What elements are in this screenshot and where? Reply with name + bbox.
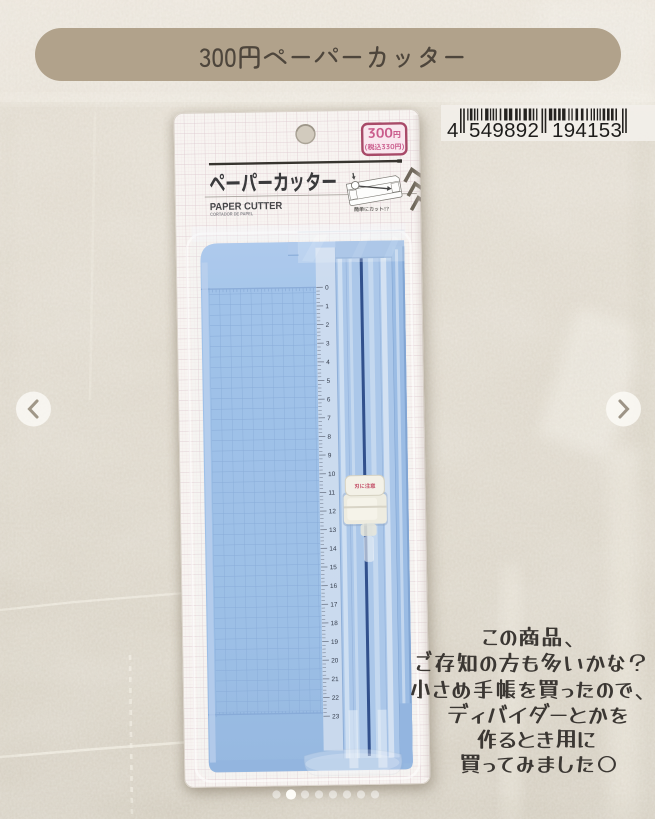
svg-text:10: 10: [328, 471, 336, 478]
svg-text:CORTADOR DE PAPEL: CORTADOR DE PAPEL: [210, 211, 253, 217]
svg-text:8: 8: [327, 434, 331, 441]
svg-text:19: 19: [331, 639, 339, 646]
svg-text:5: 5: [327, 378, 331, 385]
svg-text:20: 20: [331, 657, 339, 664]
svg-text:23: 23: [332, 713, 340, 720]
svg-text:2: 2: [326, 322, 330, 329]
svg-text:16: 16: [330, 583, 338, 590]
svg-text:14: 14: [329, 546, 337, 553]
svg-text:18: 18: [331, 620, 339, 627]
svg-text:6: 6: [327, 396, 331, 403]
svg-text:4: 4: [326, 359, 330, 366]
svg-text:1: 1: [325, 303, 329, 310]
svg-text:194153: 194153: [552, 119, 622, 142]
svg-text:9: 9: [328, 452, 332, 459]
svg-text:11: 11: [328, 490, 335, 497]
svg-text:4: 4: [447, 119, 458, 142]
svg-text:7: 7: [327, 415, 331, 422]
svg-text:15: 15: [330, 564, 338, 571]
svg-text:549892: 549892: [469, 119, 539, 142]
svg-text:0: 0: [325, 285, 329, 292]
svg-text:13: 13: [329, 527, 337, 534]
svg-text:3: 3: [326, 340, 330, 347]
svg-text:22: 22: [332, 695, 340, 702]
svg-text:21: 21: [331, 676, 339, 683]
svg-text:12: 12: [329, 508, 337, 515]
svg-text:17: 17: [330, 601, 338, 608]
